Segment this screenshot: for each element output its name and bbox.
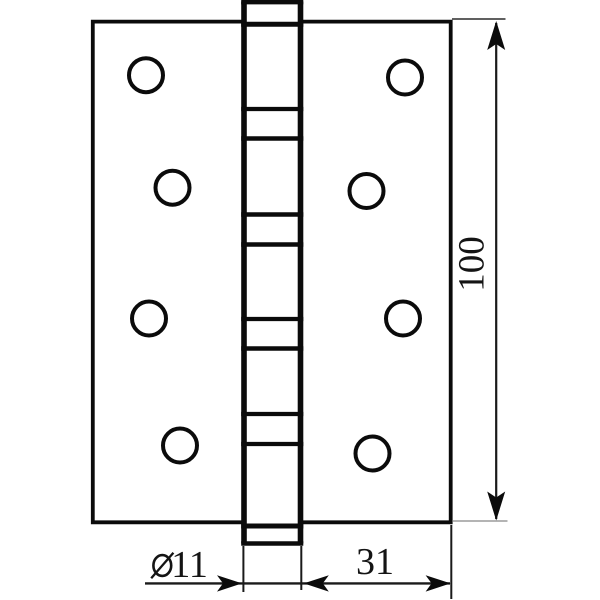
svg-text:100: 100 [452,236,493,292]
svg-text:31: 31 [356,541,394,583]
svg-text:11: 11 [171,544,208,586]
